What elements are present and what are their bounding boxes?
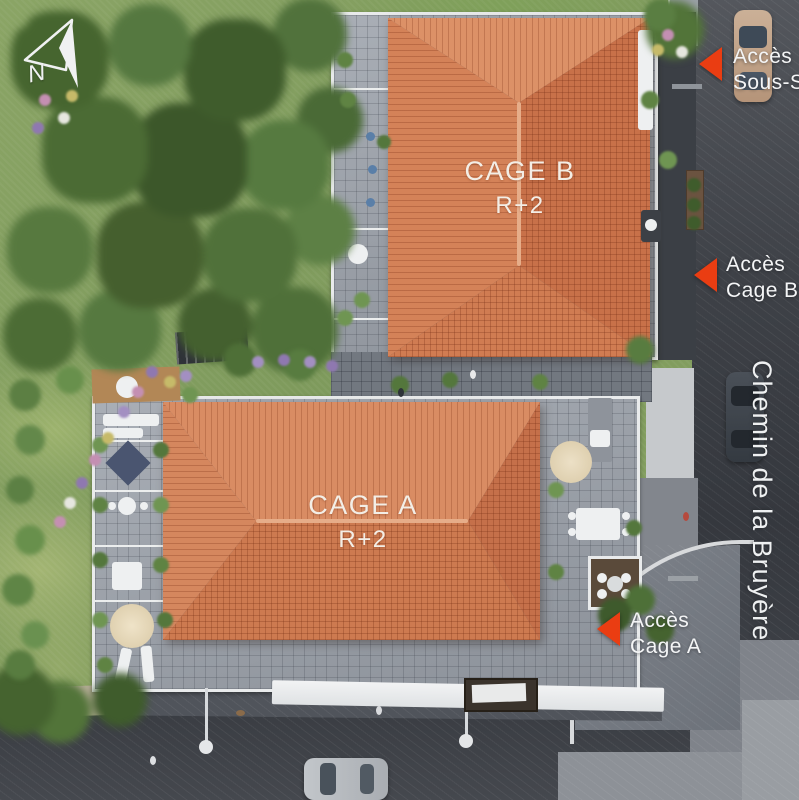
round-table [118,497,136,515]
terrace-divider [334,88,390,90]
terrace-divider [95,490,165,492]
chair [568,512,576,520]
street-lamp-head [199,740,213,754]
terrace-chair [368,165,377,174]
car-rear-window [360,764,374,794]
terrace-chair [366,132,375,141]
sign-panel [472,683,527,703]
outdoor-sofa [638,30,653,130]
umbrella-cream [550,441,592,483]
terrace-divider [95,545,165,547]
dining-table [576,508,620,540]
entrance-deck-cage-a [588,556,642,610]
table [607,576,623,592]
building-level: R+2 [445,192,595,220]
chair [622,528,630,536]
outdoor-sofa [103,414,159,426]
access-arrow-icon [699,47,722,81]
person [398,388,404,397]
access-arrow-icon [694,258,717,292]
chair [621,589,631,599]
access-label: Accès Cage A [630,608,701,660]
garden-table [116,376,138,398]
chair [568,528,576,536]
exterior-stairs [175,328,249,365]
dog [236,710,245,716]
table [645,219,657,231]
car-silver [304,758,388,800]
dining-table [112,562,142,590]
access-label: Accès Cage B [726,252,798,304]
outdoor-sofa [103,428,143,438]
access-label-line1: Accès [630,608,701,634]
person [683,512,689,521]
kitchen-counter [590,430,610,447]
label-cage-b: CAGE B R+2 [445,156,595,220]
person [150,756,156,765]
access-label: Accès Sous-Sol [733,44,799,96]
street-name-label: Chemin de la Bruyère [746,360,777,690]
access-label-line2: Cage A [630,634,701,660]
car-windshield [320,763,336,795]
chair [597,573,607,583]
building-level: R+2 [288,526,438,554]
access-label-line2: Sous-Sol [733,70,799,96]
terrace-chair [366,198,375,207]
access-arrow-icon [597,612,620,646]
concrete-pad [646,368,694,478]
site-plan-aerial-view: N CAGE B R+2 CAGE A R+2 Accès Sous-Sol A… [0,0,799,800]
chair [622,512,630,520]
chair [140,502,148,510]
sales-sign-board [464,678,538,712]
terrace-between-buildings [331,352,652,402]
street-lamp-head [459,734,473,748]
access-label-line2: Cage B [726,278,798,304]
umbrella-cream [110,604,154,648]
terrace-divider [95,600,165,602]
terrace-divider [334,318,390,320]
building-name: CAGE A [288,490,438,521]
lamp-arm [668,576,698,581]
chair [597,589,607,599]
terrace-divider [334,228,390,230]
compass: N [10,8,110,118]
access-label-line1: Accès [733,44,799,70]
person [470,370,476,379]
lamp-arm [672,84,702,89]
chair [108,502,116,510]
round-table [348,244,368,264]
label-cage-a: CAGE A R+2 [288,490,438,554]
flower-bed-layer [0,0,8,8]
street-planter [686,170,704,230]
person [376,706,382,715]
access-label-line1: Accès [726,252,798,278]
building-name: CAGE B [445,156,595,187]
